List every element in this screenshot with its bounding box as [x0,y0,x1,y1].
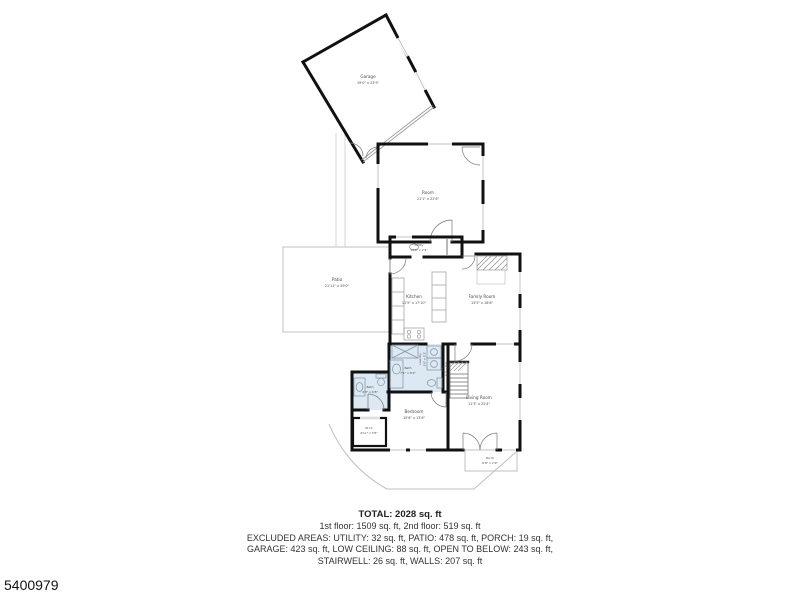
summary-floors: 1st floor: 1509 sq. ft, 2nd floor: 519 s… [0,521,800,533]
laundry-dims: 3'6" x 5'1" [423,351,427,366]
family-room-label: Family Room [469,294,496,299]
room-dims: 21'1" x 22'6" [417,197,440,201]
summary-excluded-1: EXCLUDED AREAS: UTILITY: 32 sq. ft, PATI… [0,533,800,545]
summary-excluded-2: GARAGE: 423 sq. ft, LOW CEILING: 88 sq. … [0,544,800,556]
bath-main-dims: 7'1" x 8'2" [400,371,416,375]
garage-label: Garage [360,74,376,79]
wic-label: W.I.C [365,426,373,430]
room-label: Room [422,190,434,195]
island-counter [432,272,446,322]
bath-small-dims: 4'3" x 6'8" [362,390,378,394]
kitchen-dims: 11'5" x 17'10" [402,301,427,305]
room-upper: Room 21'1" x 22'6" [378,144,483,242]
summary-total: TOTAL: 2028 sq. ft [0,509,800,521]
room-windows [378,144,483,230]
family-room-dims: 13'5" x 18'6" [471,301,494,305]
stairwell [450,362,468,398]
wic-dims: 4'11" x 3'5" [360,431,378,435]
bath-small-label: Bath [367,385,374,389]
porch-label: Porch [486,456,494,460]
living-room-dims: 11'3" x 22'4" [468,402,491,406]
patio-outline [283,247,390,332]
living-room-label: Living Room [466,395,492,400]
kitchen-label: Kitchen [406,294,422,299]
garage-dims: 19'0" x 23'9" [357,81,380,85]
laundry-label: Laundry [418,353,422,365]
utility-dims: 13'8" x 2'4" [410,248,428,252]
stove [404,328,424,340]
hall-dims: 3'2" x 8'6" [445,361,449,376]
room-garage: Garage 19'0" x 23'9" [303,15,434,162]
bedroom-dims: 10'6" x 13'6" [403,416,426,420]
room-door-arcs [430,147,480,242]
patio-dims: 21'11" x 39'0" [325,284,350,288]
patio-label: Patio [332,277,343,282]
porch-dims: 6'8" x 2'9" [482,461,498,465]
summary-excluded-3: STAIRWELL: 26 sq. ft, WALLS: 207 sq. ft [0,556,800,568]
area-summary: TOTAL: 2028 sq. ft 1st floor: 1509 sq. f… [0,509,800,567]
bedroom-label: Bedroom [405,409,424,414]
garage-door [362,105,435,162]
utility-label: Utility [415,243,424,247]
bath-main-label: Bath [405,366,412,370]
kitchen-counters [392,272,446,340]
open-to-below-hatch [477,256,507,284]
hall-label: Hall [440,366,444,372]
photo-number: 5400979 [4,577,59,593]
bath-fills [352,344,443,410]
